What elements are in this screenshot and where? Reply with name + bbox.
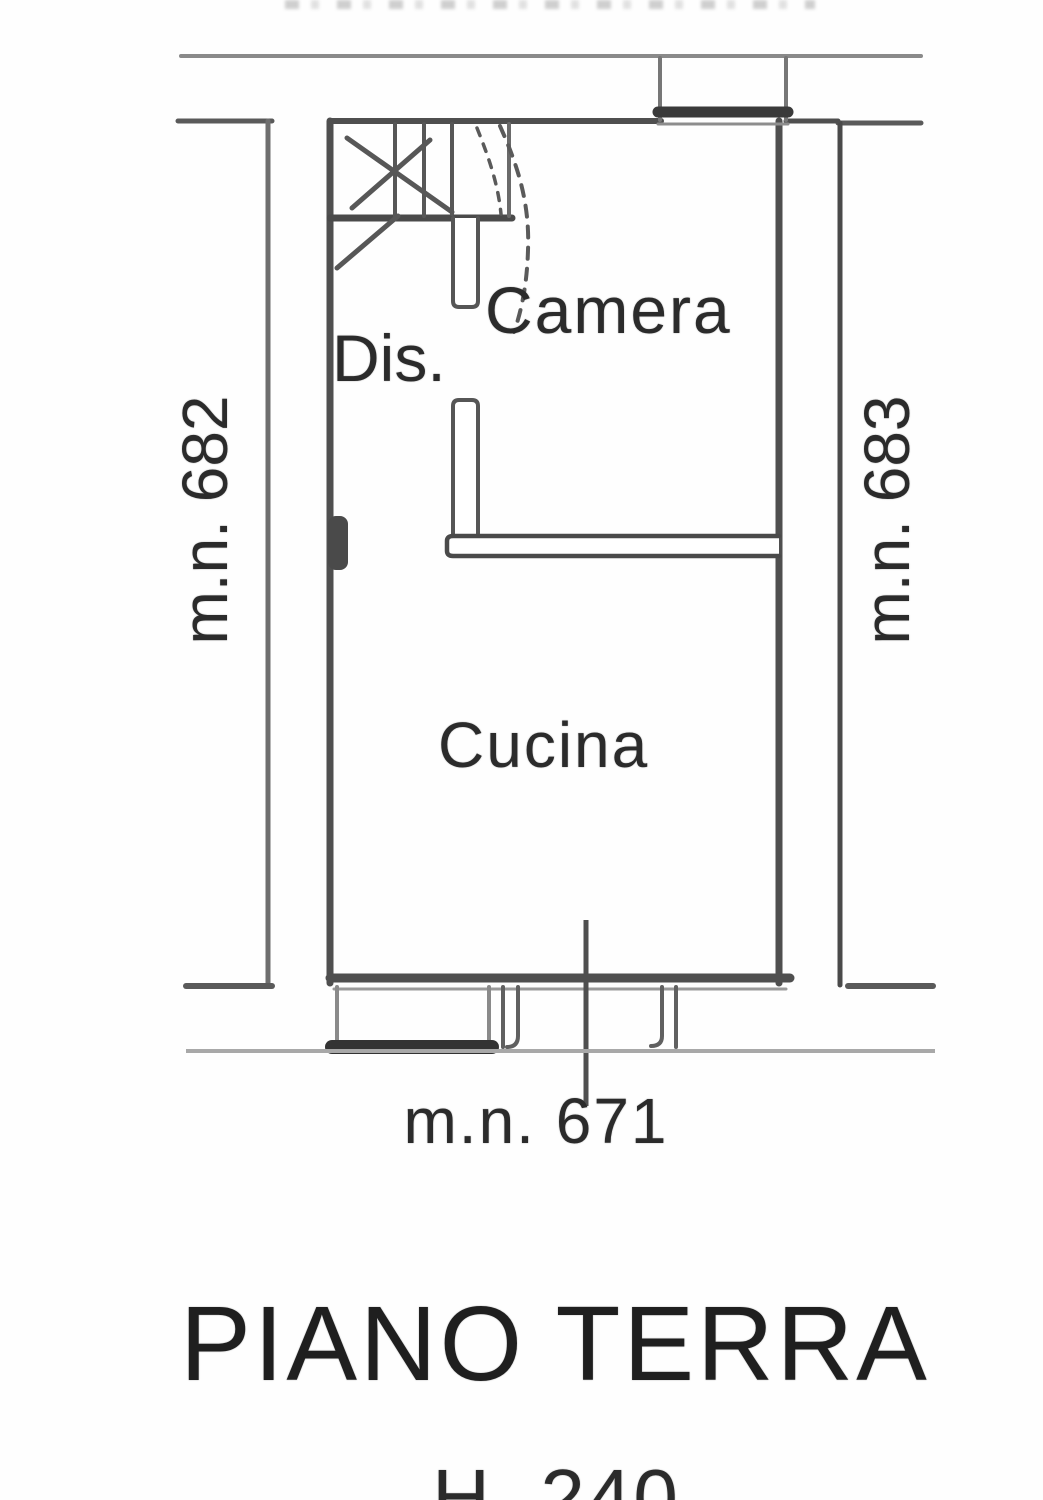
- window-top: [658, 58, 788, 124]
- door-jambs-bottom: [503, 987, 676, 1047]
- entrance-porch: [332, 987, 492, 1047]
- parcel-label-right: m.n. 683: [850, 395, 924, 644]
- parcel-label-left: m.n. 682: [168, 395, 242, 644]
- ceiling-height-note: H. 240: [432, 1452, 680, 1500]
- camera-cucina-partition: [447, 536, 779, 556]
- room-label-cucina: Cucina: [438, 708, 649, 782]
- floor-plan-page: Camera Dis. Cucina m.n. 682 m.n. 683 m.n…: [0, 0, 1043, 1500]
- dis-camera-partition: [453, 218, 478, 540]
- left-wall-joint: [328, 516, 348, 570]
- plan-title: PIANO TERRA: [180, 1284, 930, 1405]
- room-label-camera: Camera: [485, 272, 732, 348]
- room-label-dis: Dis.: [332, 320, 446, 396]
- parcel-label-bottom: m.n. 671: [403, 1084, 668, 1158]
